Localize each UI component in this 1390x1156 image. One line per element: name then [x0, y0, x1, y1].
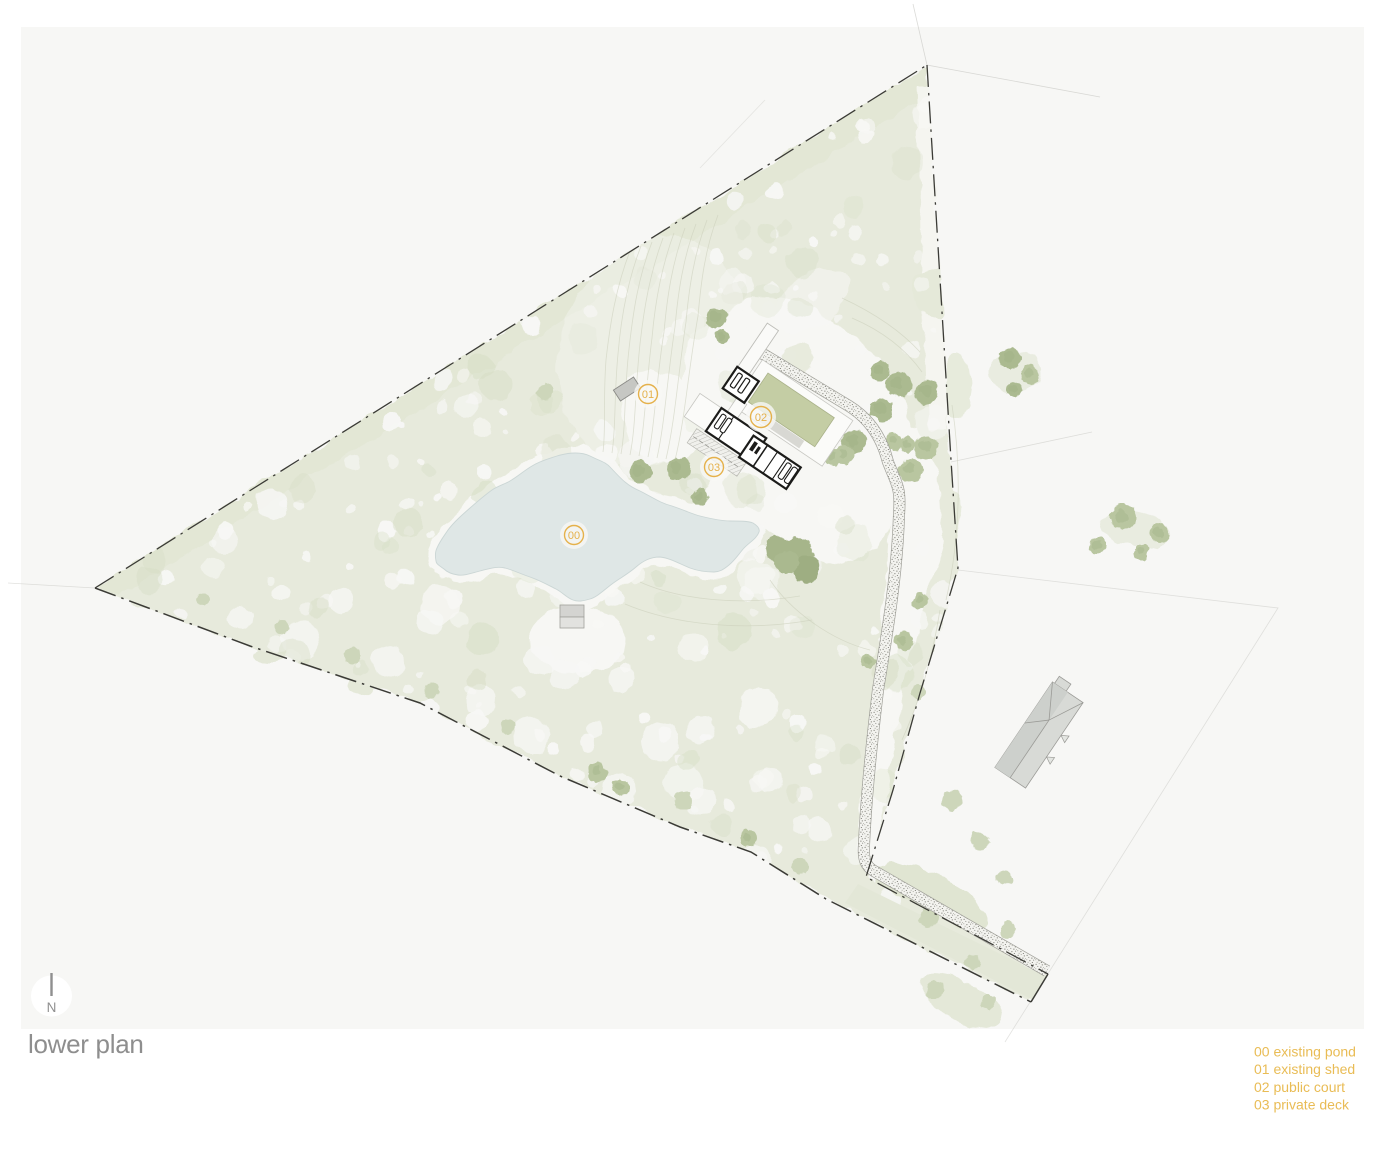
svg-text:03 private deck: 03 private deck	[1254, 1097, 1350, 1113]
svg-text:02 public court: 02 public court	[1254, 1079, 1345, 1095]
svg-text:lower plan: lower plan	[28, 1029, 144, 1059]
svg-text:00: 00	[568, 530, 580, 542]
svg-text:00 existing pond: 00 existing pond	[1254, 1044, 1356, 1060]
svg-text:02: 02	[755, 412, 767, 424]
svg-text:01: 01	[642, 389, 654, 401]
svg-text:03: 03	[708, 462, 720, 474]
svg-text:01 existing shed: 01 existing shed	[1254, 1061, 1355, 1077]
svg-text:N: N	[47, 1000, 57, 1015]
